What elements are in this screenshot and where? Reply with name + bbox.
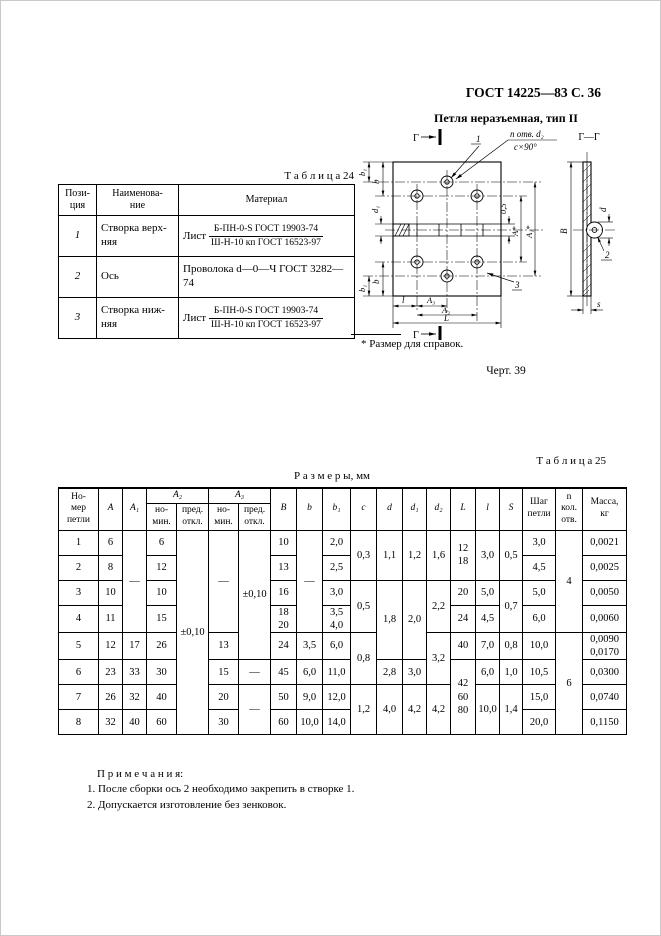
table-cell: 33: [123, 660, 147, 685]
table-cell: 42 60 80: [451, 660, 476, 735]
table-cell: 1,4: [500, 685, 523, 735]
table-cell: 5,0: [523, 580, 556, 605]
holes-note-line2: c×90°: [514, 142, 537, 152]
table-cell: 0,5: [351, 580, 377, 632]
column-header: B: [271, 488, 297, 530]
table-cell: 0,0050: [583, 580, 627, 605]
table25-head: Но- мер петлиAA₁A₂A₃Bbb₁cdd₁d₂LlSШаг пет…: [59, 488, 627, 530]
table-cell: 4,5: [523, 555, 556, 580]
table-cell: 1,2: [351, 685, 377, 735]
table-cell: 23: [99, 660, 123, 685]
table-cell: 3,2: [427, 632, 451, 684]
column-header: Наименова- ние: [97, 185, 179, 216]
table-cell: 8: [99, 555, 123, 580]
dim-b1-bottom: b₁: [357, 285, 367, 292]
table-cell: 2: [59, 555, 99, 580]
column-header: S: [500, 488, 523, 530]
table-cell: 10,0: [476, 685, 500, 735]
column-header: Но- мер петли: [59, 488, 99, 530]
table-cell: 14,0: [323, 710, 351, 735]
table-cell: 3,0: [323, 580, 351, 605]
table-cell: —: [239, 660, 271, 685]
table-cell: 17: [123, 632, 147, 659]
table-cell: 12: [147, 555, 177, 580]
section-letter: Г: [413, 133, 419, 144]
table-cell: 40: [451, 632, 476, 659]
table-cell: 0,8: [351, 632, 377, 684]
table-row: 8324060306010,014,020,00,1150: [59, 710, 627, 735]
table-cell: —: [123, 530, 147, 632]
fraction-denominator: Ш-Н-10 кп ГОСТ 16523-97: [209, 237, 323, 250]
table-cell: 5,0: [476, 580, 500, 605]
table-cell: 3,5 4,0: [323, 605, 351, 632]
table-cell: 0,5: [500, 530, 523, 580]
table-cell: 7,0: [476, 632, 500, 659]
table-cell: 1,2: [403, 530, 427, 580]
table-cell: 32: [123, 685, 147, 710]
dim-A3: А₃: [426, 295, 435, 305]
table-cell: 26: [99, 685, 123, 710]
column-header: d: [377, 488, 403, 530]
table-cell: 2,0: [403, 580, 427, 660]
fraction-numerator: Б-ПН-0-S ГОСТ 19903-74: [209, 305, 323, 319]
table-cell: Створка ниж- няя: [97, 298, 179, 339]
column-header: n кол. отв.: [556, 488, 583, 530]
dim-B: B: [559, 228, 569, 234]
centerlines: [363, 170, 543, 321]
dim-d: d: [598, 207, 608, 212]
table-cell: 1: [59, 530, 99, 555]
table-cell: 4,2: [427, 685, 451, 735]
table-cell: 11: [99, 605, 123, 632]
dim-A-star: А*: [510, 226, 520, 237]
column-header: d₂: [427, 488, 451, 530]
dim-b-bottom: b: [371, 279, 381, 284]
table-cell: 2,8: [377, 660, 403, 685]
document-page: { "page": { "header": "ГОСТ 14225—83 С. …: [0, 0, 661, 936]
table-cell: 4,5: [476, 605, 500, 632]
table-cell: 10: [99, 580, 123, 605]
dim-gap: 0,5: [498, 203, 508, 214]
table-cell: 3: [59, 580, 99, 605]
column-header: A: [99, 488, 123, 530]
column-header: Пози- ция: [59, 185, 97, 216]
notes-title: П р и м е ч а н и я:: [87, 767, 354, 782]
fraction-denominator: Ш-Н-10 кп ГОСТ 16523-97: [209, 319, 323, 332]
table-cell: 3,0: [403, 660, 427, 685]
table-cell: 11,0: [323, 660, 351, 685]
table-cell: 4: [556, 530, 583, 632]
table-cell: —: [239, 685, 271, 735]
table-cell: Ось: [97, 257, 179, 298]
table-cell: ЛистБ-ПН-0-S ГОСТ 19903-74Ш-Н-10 кп ГОСТ…: [179, 298, 355, 339]
table-cell: ЛистБ-ПН-0-S ГОСТ 19903-74Ш-Н-10 кп ГОСТ…: [179, 216, 355, 257]
table25-caption: Т а б л и ц а 25: [58, 455, 606, 467]
table-cell: 1,8: [377, 580, 403, 660]
table-cell: 0,8: [500, 632, 523, 659]
table-row: 3 Створка ниж- няя ЛистБ-ПН-0-S ГОСТ 199…: [59, 298, 355, 339]
table-cell: 6,0: [476, 660, 500, 685]
material-fraction: Б-ПН-0-S ГОСТ 19903-74Ш-Н-10 кп ГОСТ 165…: [209, 223, 323, 250]
part-leaders: 1 3: [451, 134, 522, 290]
column-header: но- мин.: [147, 503, 177, 530]
table-cell: 50: [271, 685, 297, 710]
part3-label: 3: [514, 280, 520, 290]
table-row: 512172613243,56,00,83,2407,00,810,060,00…: [59, 632, 627, 659]
material-prefix: Лист: [183, 230, 206, 242]
notes-block: П р и м е ч а н и я: 1. После сборки ось…: [87, 767, 354, 813]
table-cell: —: [209, 530, 239, 632]
holes-note: n отв. d₂ c×90°: [456, 129, 557, 179]
table24: Пози- ция Наименова- ние Материал 1 Ство…: [58, 184, 355, 339]
table-cell: 6: [147, 530, 177, 555]
table-cell: 16: [271, 580, 297, 605]
table-cell: 0,0021: [583, 530, 627, 555]
column-header: пред. откл.: [177, 503, 209, 530]
table-cell: 13: [271, 555, 297, 580]
hinge-drawing: 1 3 n отв. d₂ c×90° Г Г b b₁ d₁ b: [351, 124, 657, 340]
table-cell: 10,0: [523, 632, 556, 659]
table-row: 726324020—509,012,01,24,04,24,210,01,415…: [59, 685, 627, 710]
table-row: 2 Ось Проволока d—0—Ч ГОСТ 3282—74: [59, 257, 355, 298]
table-cell: 4: [59, 605, 99, 632]
table-cell: 1,1: [377, 530, 403, 580]
table-cell: 40: [147, 685, 177, 710]
column-header: Шаг петли: [523, 488, 556, 530]
table25: Но- мер петлиAA₁A₂A₃Bbb₁cdd₁d₂LlSШаг пет…: [58, 487, 627, 735]
fraction-numerator: Б-ПН-0-S ГОСТ 19903-74: [209, 223, 323, 237]
table-cell: 20: [209, 685, 239, 710]
table-cell: 0,7: [500, 580, 523, 632]
table-cell: 0,1150: [583, 710, 627, 735]
front-view: [363, 162, 543, 321]
section-view-title: Г—Г: [578, 132, 600, 143]
dim-A1-star: А₁*: [524, 225, 534, 239]
table-cell: 6: [99, 530, 123, 555]
footnote: * Размер для справок.: [361, 338, 463, 350]
dim-s: s: [597, 299, 601, 309]
section-view: Г—Г B d: [559, 132, 615, 314]
table-cell: 10: [147, 580, 177, 605]
table-cell: 13: [209, 632, 239, 659]
table-cell: 12 18: [451, 530, 476, 580]
table-cell: 20: [451, 580, 476, 605]
column-header: d₁: [403, 488, 427, 530]
table-row: 623333015—456,011,02,83,042 60 806,01,01…: [59, 660, 627, 685]
table-header-row: Но- мер петлиAA₁A₂A₃Bbb₁cdd₁d₂LlSШаг пет…: [59, 488, 627, 503]
dim-L: L: [443, 313, 449, 323]
table-cell: 10,5: [523, 660, 556, 685]
table-cell: 32: [99, 710, 123, 735]
table24-caption: Т а б л и ц а 24: [58, 170, 354, 182]
column-header: A₁: [123, 488, 147, 530]
table-cell: 10,0: [297, 710, 323, 735]
table-cell: 15: [147, 605, 177, 632]
table-cell: —: [297, 530, 323, 632]
table-header-row: Пози- ция Наименова- ние Материал: [59, 185, 355, 216]
table-row: 16—6±0,10—±0,1010—2,00,31,11,21,612 183,…: [59, 530, 627, 555]
table-cell: 40: [123, 710, 147, 735]
table-cell: 2,0: [323, 530, 351, 555]
part1-label: 1: [476, 134, 481, 144]
note-item: 1. После сборки ось 2 необходимо закрепи…: [87, 782, 354, 797]
holes-note-line1: n отв. d₂: [510, 129, 544, 139]
table-cell: 4,2: [403, 685, 427, 735]
table-cell: 30: [209, 710, 239, 735]
table-cell: ±0,10: [177, 530, 209, 735]
table-cell: 2,5: [323, 555, 351, 580]
dim-b1-top: b₁: [357, 169, 367, 176]
column-header: пред. откл.: [239, 503, 271, 530]
section-mark-top: Г: [413, 129, 440, 145]
table-cell: 18 20: [271, 605, 297, 632]
column-header: A₃: [209, 488, 271, 503]
table-cell: 4,0: [377, 685, 403, 735]
table-cell: 0,0740: [583, 685, 627, 710]
table-row: 1 Створка верх- няя ЛистБ-ПН-0-S ГОСТ 19…: [59, 216, 355, 257]
table-cell: 0,0300: [583, 660, 627, 685]
table25-title: Р а з м е р ы, мм: [58, 470, 606, 482]
table-cell: 0,3: [351, 530, 377, 580]
table-cell: 30: [147, 660, 177, 685]
table-cell: 12: [99, 632, 123, 659]
table-cell: 6: [556, 632, 583, 734]
table-cell: 26: [147, 632, 177, 659]
table-cell: 10: [271, 530, 297, 555]
table-cell: Проволока d—0—Ч ГОСТ 3282—74: [179, 257, 355, 298]
table-cell: 24: [271, 632, 297, 659]
table-cell: 45: [271, 660, 297, 685]
table-cell: 6,0: [297, 660, 323, 685]
table-cell: 15: [209, 660, 239, 685]
table-cell: 6: [59, 660, 99, 685]
table-cell: 15,0: [523, 685, 556, 710]
column-header: L: [451, 488, 476, 530]
dim-d1: d₁: [370, 206, 380, 213]
table-cell: 0,0060: [583, 605, 627, 632]
column-header: Материал: [179, 185, 355, 216]
figure-caption: Черт. 39: [353, 365, 659, 377]
table-cell: Створка верх- няя: [97, 216, 179, 257]
table-cell: 3,5: [297, 632, 323, 659]
note-item: 2. Допускается изготовление без зенковок…: [87, 798, 354, 813]
table-cell: 2,2: [427, 580, 451, 632]
table-cell: 3,0: [523, 530, 556, 555]
material-fraction: Б-ПН-0-S ГОСТ 19903-74Ш-Н-10 кп ГОСТ 165…: [209, 305, 323, 332]
dim-b-top: b: [371, 179, 381, 184]
table-cell: ±0,10: [239, 530, 271, 660]
table-cell: 2: [59, 257, 97, 298]
table-cell: 5: [59, 632, 99, 659]
table-cell: 1,0: [500, 660, 523, 685]
table-cell: 12,0: [323, 685, 351, 710]
table-cell: 0,0090 0,0170: [583, 632, 627, 659]
table-cell: 8: [59, 710, 99, 735]
column-header: b: [297, 488, 323, 530]
table-cell: 7: [59, 685, 99, 710]
column-header: c: [351, 488, 377, 530]
table-cell: 24: [451, 605, 476, 632]
footnote-rule: [351, 334, 401, 335]
column-header: но- мин.: [209, 503, 239, 530]
column-header: A₂: [147, 488, 209, 503]
table-cell: 20,0: [523, 710, 556, 735]
table-cell: 1: [59, 216, 97, 257]
table-cell: 60: [147, 710, 177, 735]
material-prefix: Лист: [183, 312, 206, 324]
table-cell: 60: [271, 710, 297, 735]
part2-label: 2: [605, 250, 610, 260]
table-cell: 3,0: [476, 530, 500, 580]
column-header: b₁: [323, 488, 351, 530]
table-cell: 9,0: [297, 685, 323, 710]
table-cell: 3: [59, 298, 97, 339]
column-header: Масса, кг: [583, 488, 627, 530]
page-header: ГОСТ 14225—83 С. 36: [1, 85, 601, 101]
table-cell: 0,0025: [583, 555, 627, 580]
table-cell: 1,6: [427, 530, 451, 580]
table-cell: 6,0: [323, 632, 351, 659]
table-cell: 6,0: [523, 605, 556, 632]
table25-body: 16—6±0,10—±0,1010—2,00,31,11,21,612 183,…: [59, 530, 627, 735]
column-header: l: [476, 488, 500, 530]
